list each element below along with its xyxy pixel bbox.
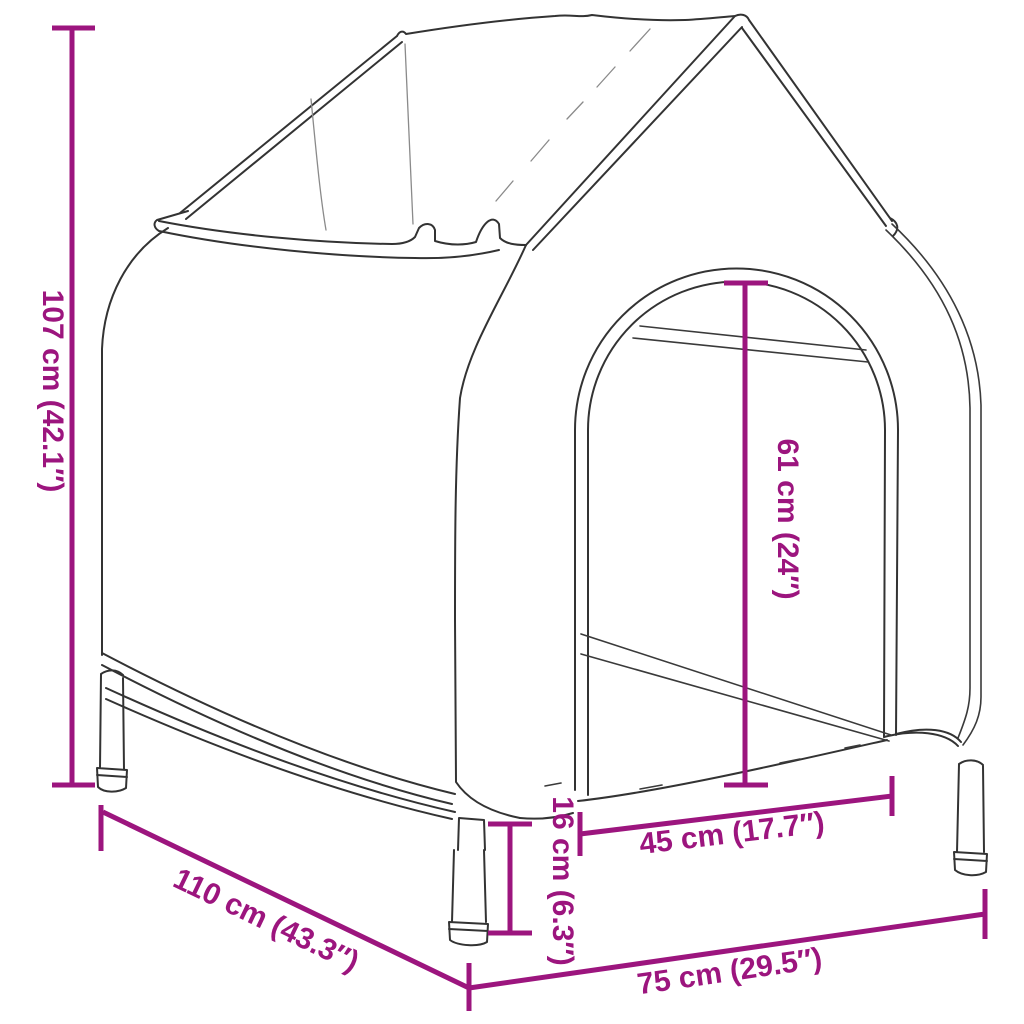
left-wall (102, 228, 526, 818)
front-wall (520, 224, 981, 819)
dimension-door-height: 61 cm (24″) (724, 283, 804, 785)
dimension-height: 107 cm (42.1″) (36, 28, 95, 785)
dimension-door-height-label: 61 cm (24″) (771, 438, 804, 599)
roof-outline (180, 15, 897, 236)
dimension-base-height-label: 16 cm (6.3″) (546, 796, 579, 965)
dimension-depth-label: 110 cm (43.3″) (168, 862, 364, 979)
right-wall-edges (886, 224, 981, 745)
dimension-base-height: 16 cm (6.3″) (488, 796, 579, 965)
roof-cover-hem (155, 211, 526, 258)
dimension-door-height-line (724, 283, 768, 785)
roof (155, 15, 898, 259)
front-base-hem (520, 730, 961, 819)
front-center-leg (449, 818, 488, 945)
rear-right-leg (954, 760, 987, 875)
dimension-depth: 110 cm (43.3″) (101, 805, 469, 1011)
dimension-door-width: 45 cm (17.7″) (580, 776, 892, 861)
front-left-leg (97, 670, 127, 791)
dimension-depth-line (101, 805, 469, 1011)
base-frame (106, 688, 455, 819)
dimension-annotations: 107 cm (42.1″) 110 cm (43.3″) 75 cm (29.… (36, 28, 985, 1011)
door-top-crossbar (633, 326, 868, 362)
door-opening (545, 268, 898, 795)
dog-house-dimension-diagram: 107 cm (42.1″) 110 cm (43.3″) 75 cm (29.… (0, 0, 1024, 1024)
dimension-base-height-line (488, 824, 532, 933)
diagram-canvas: 107 cm (42.1″) 110 cm (43.3″) 75 cm (29.… (0, 0, 1024, 1024)
bed-surface-marks (545, 745, 860, 789)
left-wall-hem (102, 653, 455, 804)
left-wall-edges (102, 228, 526, 818)
base-side-rails (106, 688, 455, 819)
interior-bed-edge (581, 634, 891, 741)
roof-gable-left-edge (526, 16, 742, 250)
roof-fabric-creases (311, 29, 650, 230)
dog-house-drawing (97, 15, 987, 946)
dimension-height-label: 107 cm (42.1″) (36, 290, 69, 493)
